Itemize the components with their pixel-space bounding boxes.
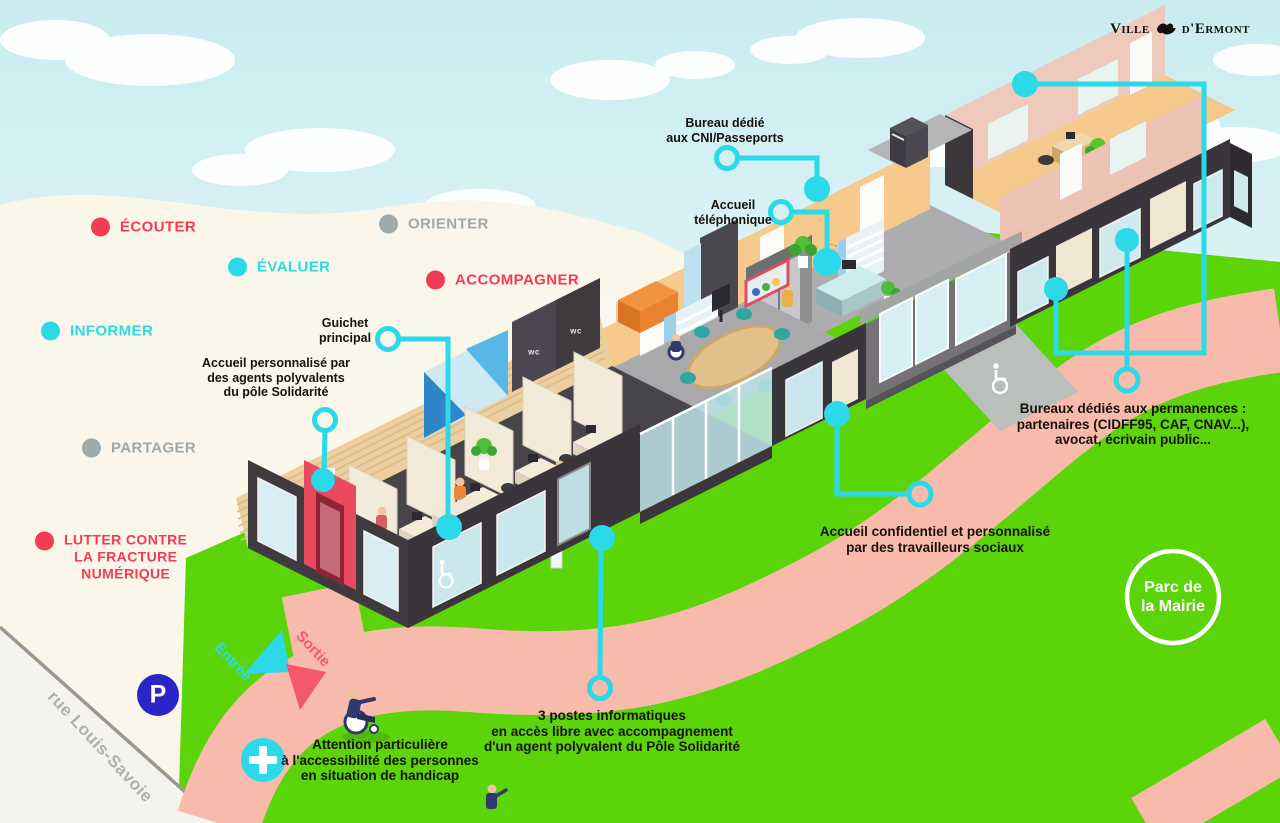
label-wc-1: wc	[528, 348, 540, 357]
keyword-dot	[41, 322, 60, 341]
city-logo: Ville d'Ermont	[1110, 20, 1250, 38]
keyword-orienter: ORIENTER	[379, 215, 489, 234]
keyword-dot	[91, 218, 110, 237]
keyword-dot	[426, 271, 445, 290]
keyword-dot	[379, 215, 398, 234]
keyword-ecouter: ÉCOUTER	[91, 218, 196, 237]
keyword-partager: PARTAGER	[82, 439, 196, 458]
ermont-solidarity-center-infographic: Ville d'Ermont ÉCOUTER ÉVALUER INFORMER …	[0, 0, 1280, 823]
label-bureaux-permanences: Bureaux dédiés aux permanences : partena…	[1017, 401, 1250, 448]
logo-ermont-text: d'Ermont	[1182, 21, 1250, 38]
label-wc-2: wc	[570, 327, 582, 336]
parking-letter: P	[150, 680, 167, 709]
label-parc-mairie: Parc de la Mairie	[1141, 578, 1205, 616]
keyword-evaluer: ÉVALUER	[228, 258, 330, 277]
accessibility-plus-badge	[241, 738, 285, 782]
label-accessibilite-handicap: Attention particulière à l'accessibilité…	[281, 737, 479, 784]
label-guichet-principal: Guichet principal	[319, 316, 371, 345]
keyword-dot	[35, 532, 54, 551]
bird-icon	[1155, 20, 1177, 38]
keyword-accompagner: ACCOMPAGNER	[426, 271, 579, 290]
label-cni-passeports: Bureau dédié aux CNI/Passeports	[666, 116, 783, 145]
keyword-dot	[82, 439, 101, 458]
label-accueil-confidentiel: Accueil confidentiel et personnalisé par…	[820, 524, 1050, 555]
label-accueil-telephonique: Accueil téléphonique	[694, 198, 772, 227]
keyword-dot	[228, 258, 247, 277]
keyword-lutter-fracture-numerique: LUTTER CONTRE LA FRACTURE NUMÉRIQUE	[35, 532, 187, 583]
keyword-informer: INFORMER	[41, 322, 153, 341]
label-postes-informatiques: 3 postes informatiques en accès libre av…	[484, 708, 740, 755]
logo-ville-text: Ville	[1110, 21, 1150, 38]
label-accueil-personnalise: Accueil personnalisé par des agents poly…	[202, 356, 350, 400]
